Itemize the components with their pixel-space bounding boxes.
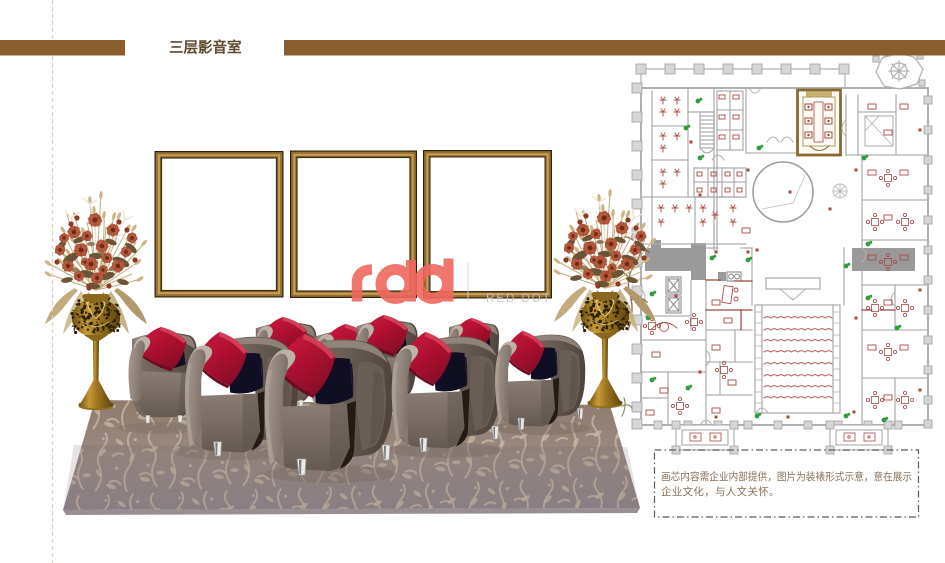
svg-text:画芯内容需企业内部提供，图片为装裱形式示意，意在展示: 画芯内容需企业内部提供，图片为装裱形式示意，意在展示 <box>661 470 912 483</box>
svg-text:RED DOT: RED DOT <box>486 293 552 305</box>
svg-text:三层影音室: 三层影音室 <box>169 39 242 57</box>
svg-text:企业文化，与人文关怀。: 企业文化，与人文关怀。 <box>661 485 780 498</box>
